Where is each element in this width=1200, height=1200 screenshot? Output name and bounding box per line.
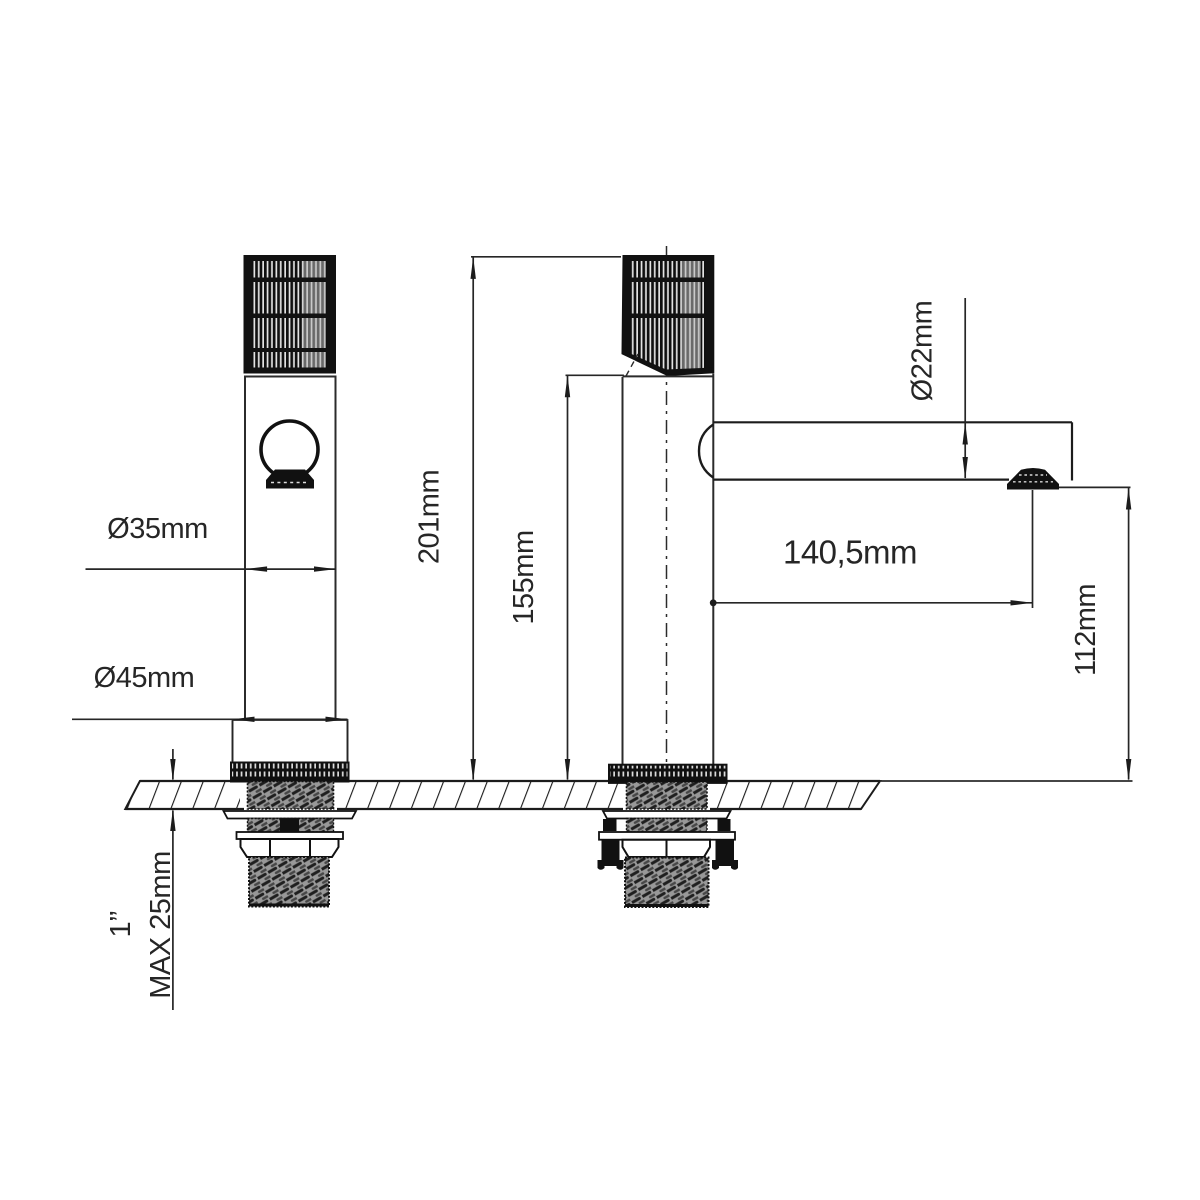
svg-text:1’’: 1’’ bbox=[105, 911, 137, 938]
svg-text:140,5mm: 140,5mm bbox=[783, 534, 917, 571]
svg-text:MAX 25mm: MAX 25mm bbox=[145, 851, 177, 998]
svg-text:Ø22mm: Ø22mm bbox=[907, 301, 939, 402]
svg-text:112mm: 112mm bbox=[1070, 584, 1102, 676]
svg-text:Ø45mm: Ø45mm bbox=[94, 662, 195, 694]
svg-text:Ø35mm: Ø35mm bbox=[107, 513, 208, 545]
svg-text:155mm: 155mm bbox=[508, 530, 540, 624]
svg-text:201mm: 201mm bbox=[414, 470, 446, 564]
